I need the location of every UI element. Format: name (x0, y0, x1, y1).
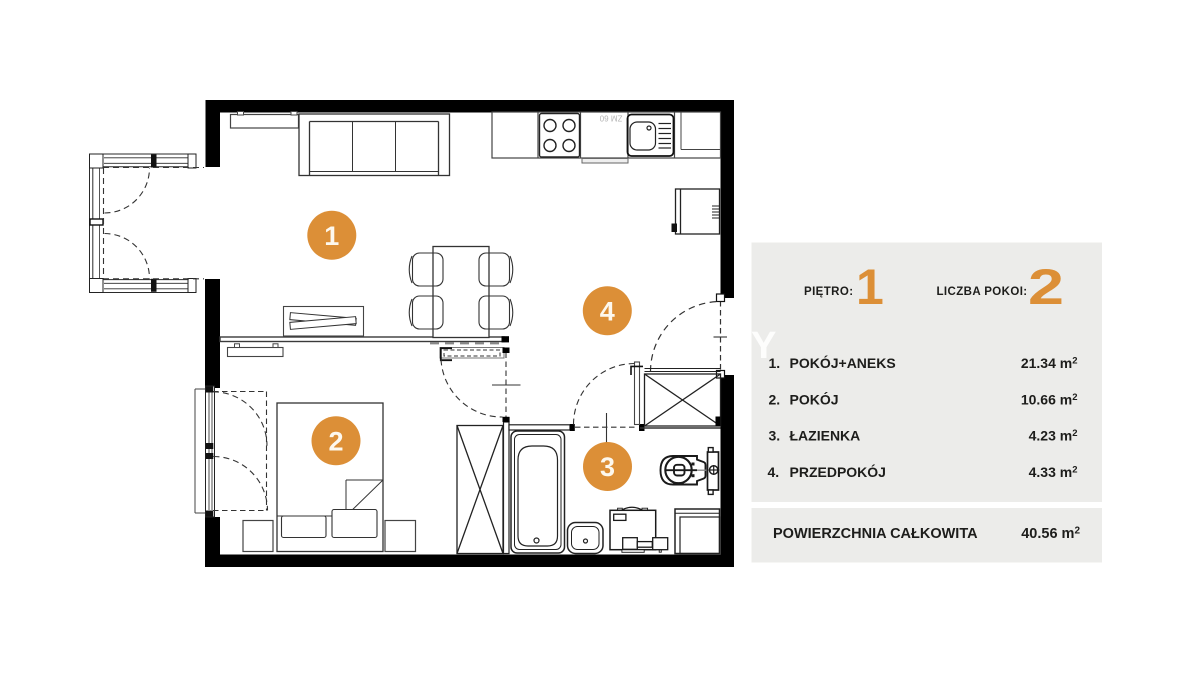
svg-text:1: 1 (856, 259, 884, 315)
svg-text:2.: 2. (769, 392, 781, 408)
svg-text:2: 2 (1028, 259, 1064, 315)
svg-text:POWIERZCHNIA CAŁKOWITA: POWIERZCHNIA CAŁKOWITA (773, 526, 978, 542)
svg-text:LICZBA POKOI:: LICZBA POKOI: (937, 286, 1028, 298)
svg-text:10.66 m2: 10.66 m2 (1021, 392, 1078, 408)
svg-text:ZM 60: ZM 60 (599, 114, 622, 123)
svg-text:3.: 3. (769, 428, 781, 444)
svg-text:PRZEDPOKÓJ: PRZEDPOKÓJ (790, 463, 886, 480)
svg-text:4.33 m2: 4.33 m2 (1029, 464, 1078, 480)
svg-text:4.: 4. (768, 464, 780, 480)
svg-text:4.23 m2: 4.23 m2 (1029, 428, 1078, 444)
svg-text:POKÓJ: POKÓJ (790, 391, 839, 408)
svg-text:21.34 m2: 21.34 m2 (1021, 355, 1078, 371)
svg-text:ŁAZIENKA: ŁAZIENKA (790, 428, 861, 444)
svg-text:POKÓJ+ANEKS: POKÓJ+ANEKS (790, 354, 896, 371)
svg-text:2: 2 (328, 426, 343, 456)
svg-text:1: 1 (324, 221, 339, 251)
svg-text:3: 3 (600, 452, 615, 482)
svg-text:Y: Y (751, 325, 776, 367)
svg-text:4: 4 (600, 296, 615, 326)
svg-text:40.56 m2: 40.56 m2 (1021, 526, 1080, 543)
svg-text:PIĘTRO:: PIĘTRO: (804, 286, 853, 298)
